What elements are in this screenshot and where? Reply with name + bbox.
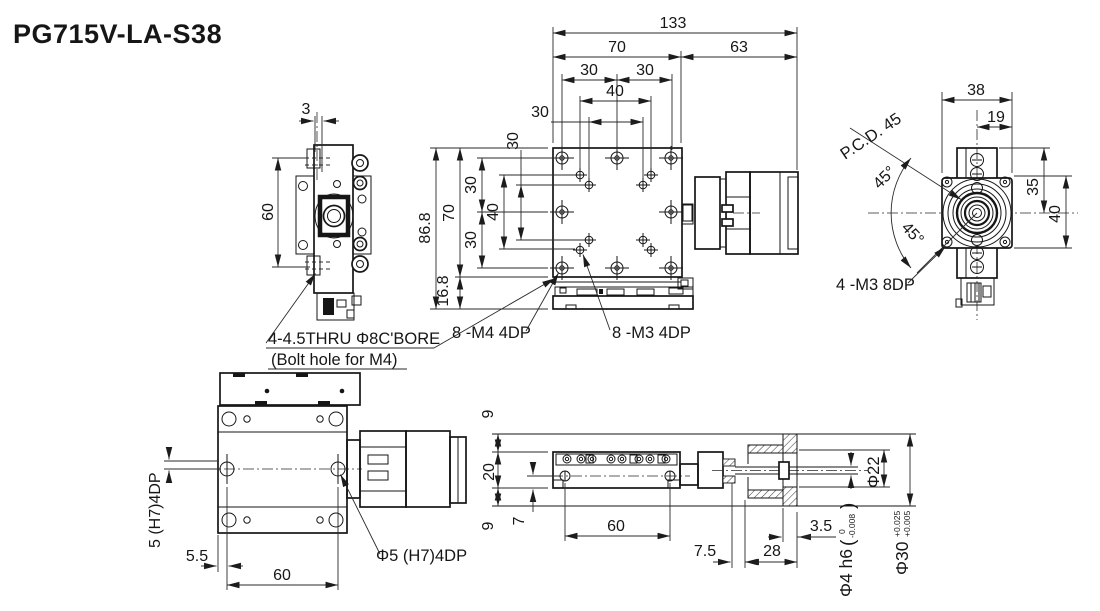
dim-19: 19: [987, 109, 1005, 126]
dim-28: 28: [763, 543, 781, 560]
dim-5-5: 5.5: [186, 548, 208, 565]
callout-thru-holes: 4-4.5THRU Φ8C'BORE: [268, 330, 440, 348]
dim-60-side: 60: [260, 203, 277, 221]
phi4-tol-upper: 0: [837, 529, 847, 534]
technical-drawing: PG715V-LA-S38 3 60 4: [0, 0, 1100, 611]
phi4-tol-lower: -0.008: [847, 514, 857, 538]
m3-hole-pattern: [573, 168, 658, 257]
drawing-title: PG715V-LA-S38: [13, 19, 222, 49]
dim-38: 38: [967, 82, 985, 99]
motor-bottom: [347, 431, 466, 507]
dim-63: 63: [730, 39, 748, 56]
scale-screws: [563, 455, 670, 463]
dim-3: 3: [302, 101, 311, 118]
dim-7: 7: [511, 516, 528, 525]
dim-133: 133: [660, 15, 687, 32]
dim-45-lower: 45°: [898, 219, 927, 248]
dim-phi30: Φ30: [892, 541, 912, 575]
dim-30-col-right: 30: [636, 62, 654, 79]
dim-30-row-pair: 30: [505, 132, 522, 150]
dim-40-end: 40: [1047, 205, 1064, 223]
callout-m4-holes: 8 -M4 4DP: [452, 324, 531, 342]
dim-16-8: 16.8: [435, 275, 452, 306]
base-holes: [222, 412, 343, 527]
phi4-paren-left: (: [838, 539, 859, 546]
phi4-paren-right: ): [838, 503, 859, 509]
plan-view: [550, 146, 798, 309]
callout-phi5: Φ5 (H7)4DP: [376, 547, 467, 565]
dim-phi22: Φ22: [865, 456, 883, 488]
dim-phi4: Φ4 h6: [836, 549, 856, 597]
dim-9-bottom: 9: [480, 521, 497, 530]
dim-9-top: 9: [480, 409, 497, 418]
dim-phi4-group: Φ4 h6 ( 0 -0.008 ): [836, 503, 859, 597]
dim-30-row-bot: 30: [463, 231, 480, 249]
dim-86-8: 86.8: [417, 212, 434, 243]
dim-60-bottom: 60: [273, 567, 291, 584]
plan-view-dimensions: 133 70 63 30 30 40 30 30 86.8 70 16.8 30…: [417, 15, 797, 309]
section-view: [492, 434, 916, 506]
callout-m3-holes: 8 -M3 4DP: [612, 324, 691, 342]
dim-3-5: 3.5: [810, 518, 832, 535]
section-view-dimensions: 9 20 9 7 60 7.5 28 3.5 Φ22 Φ4 h6 ( 0: [480, 409, 912, 597]
phi30-tol-lower: +0.005: [902, 510, 912, 537]
drawing-canvas: PG715V-LA-S38 3 60 4: [0, 0, 1100, 611]
dim-30-row-top: 30: [463, 176, 480, 194]
side-view: [296, 112, 371, 320]
dim-35: 35: [1025, 178, 1042, 196]
bottom-view-dimensions: 5 (H7)4DP 5.5 60 Φ5 (H7)4DP: [147, 447, 467, 590]
dim-40-col: 40: [606, 83, 624, 100]
phi30-tol-upper: +0.025: [892, 510, 902, 537]
dim-30-col-pair: 30: [531, 104, 549, 121]
callout-thru-sub: (Bolt hole for M4): [271, 351, 398, 369]
dim-70-top: 70: [608, 39, 626, 56]
bottom-view: [205, 373, 466, 533]
dim-7-5: 7.5: [694, 543, 716, 560]
callout-m3-motor: 4 -M3 8DP: [836, 276, 915, 294]
dim-40-row: 40: [485, 203, 502, 221]
m4-hole-pattern: [550, 146, 683, 280]
dim-pcd: P.C.D. 45: [837, 110, 905, 164]
dim-60-section: 60: [607, 518, 625, 535]
dim-30-col-left: 30: [580, 62, 598, 79]
motor-plan: [683, 172, 798, 254]
dim-20: 20: [481, 463, 498, 481]
dim-pin-depth: 5 (H7)4DP: [147, 472, 164, 548]
dim-phi30-group: Φ30 +0.025 +0.005: [892, 510, 912, 575]
dim-70-left: 70: [441, 204, 458, 222]
